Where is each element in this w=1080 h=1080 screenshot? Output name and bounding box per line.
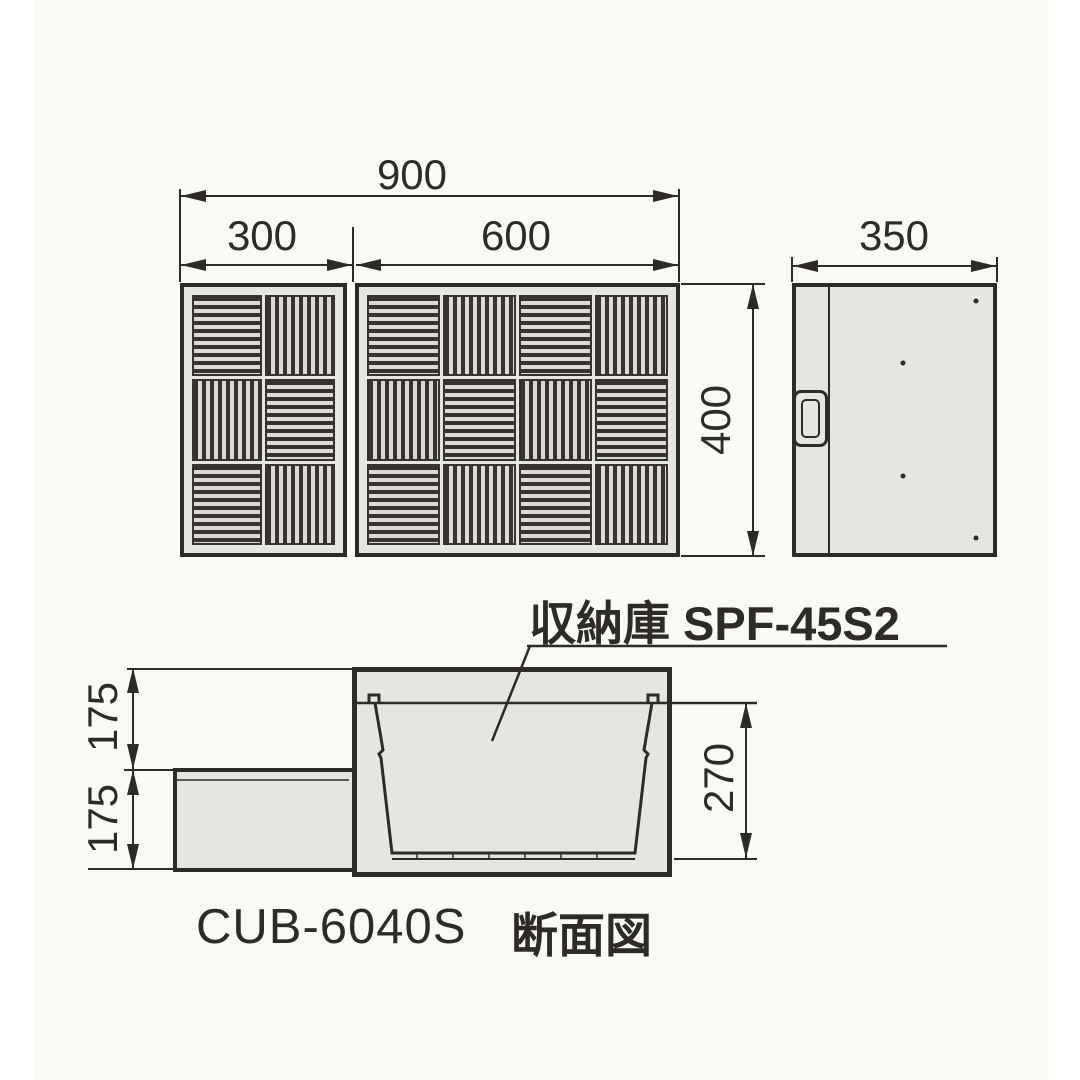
dim-300: 300: [181, 212, 352, 271]
slat-tile-vertical: [519, 379, 592, 460]
dim-300-value: 300: [227, 212, 297, 259]
dim-350-value: 350: [859, 212, 929, 259]
dim-175-lower-value: 175: [79, 784, 126, 854]
dim-175-lower: 175: [79, 769, 139, 869]
section-main-box: [352, 667, 672, 877]
slat-tile-vertical: [265, 295, 335, 376]
storage-bin-label: 収納庫 SPF-45S2: [529, 585, 900, 654]
slat-tile-horizontal: [443, 379, 516, 460]
side-view-handle-recess: [801, 399, 820, 438]
arrow-left-icon: [356, 259, 381, 271]
left-white-margin: [0, 0, 34, 1080]
slat-tile-vertical: [443, 295, 516, 376]
top-view-left-panel: [180, 283, 347, 557]
top-view-right-panel: [355, 283, 680, 557]
arrow-left-icon: [181, 190, 206, 202]
slat-tile-vertical: [367, 379, 440, 460]
arrow-up-icon: [127, 770, 139, 795]
arrow-down-icon: [127, 844, 139, 869]
slat-tile-horizontal: [192, 464, 262, 545]
arrow-down-icon: [747, 531, 759, 556]
dim-600-value: 600: [481, 212, 551, 259]
slat-tile-vertical: [595, 295, 668, 376]
slat-tile-horizontal: [519, 464, 592, 545]
slat-tile-horizontal: [595, 379, 668, 460]
dim-400: 400: [692, 284, 759, 556]
arrow-right-icon: [653, 259, 678, 271]
dim-350: 350: [793, 212, 996, 272]
arrow-right-icon: [327, 259, 352, 271]
arrow-up-icon: [127, 668, 139, 693]
dim-270-value: 270: [695, 743, 742, 813]
dim-400-value: 400: [692, 385, 739, 455]
slat-tile-horizontal: [367, 295, 440, 376]
product-model-label: CUB-6040S: [196, 899, 466, 955]
arrow-left-icon: [793, 260, 818, 272]
slat-tile-horizontal: [519, 295, 592, 376]
dim-600: 600: [356, 212, 678, 271]
slat-tile-vertical: [265, 464, 335, 545]
slat-tile-horizontal: [192, 295, 262, 376]
slat-tile-vertical: [192, 379, 262, 460]
arrow-up-icon: [747, 284, 759, 309]
section-step-box: [173, 768, 356, 872]
dim-270: 270: [695, 703, 752, 858]
dim-900: 900: [181, 151, 678, 202]
arrow-down-icon: [740, 833, 752, 858]
slat-tile-vertical: [595, 464, 668, 545]
arrow-left-icon: [181, 259, 206, 271]
slat-tile-horizontal: [265, 379, 335, 460]
arrow-right-icon: [971, 260, 996, 272]
side-view-handle: [793, 390, 828, 447]
dim-175-upper-value: 175: [79, 682, 126, 752]
arrow-up-icon: [740, 703, 752, 728]
slat-tile-horizontal: [367, 464, 440, 545]
dim-175-upper: 175: [79, 668, 139, 769]
arrow-right-icon: [653, 190, 678, 202]
dimension-diagram-canvas: 900 300 600 400 350: [0, 0, 1080, 1080]
slat-tile-vertical: [443, 464, 516, 545]
right-white-margin: [1048, 0, 1080, 1080]
arrow-down-icon: [127, 744, 139, 769]
dim-900-value: 900: [377, 151, 447, 198]
section-view-label: 断面図: [511, 897, 652, 966]
